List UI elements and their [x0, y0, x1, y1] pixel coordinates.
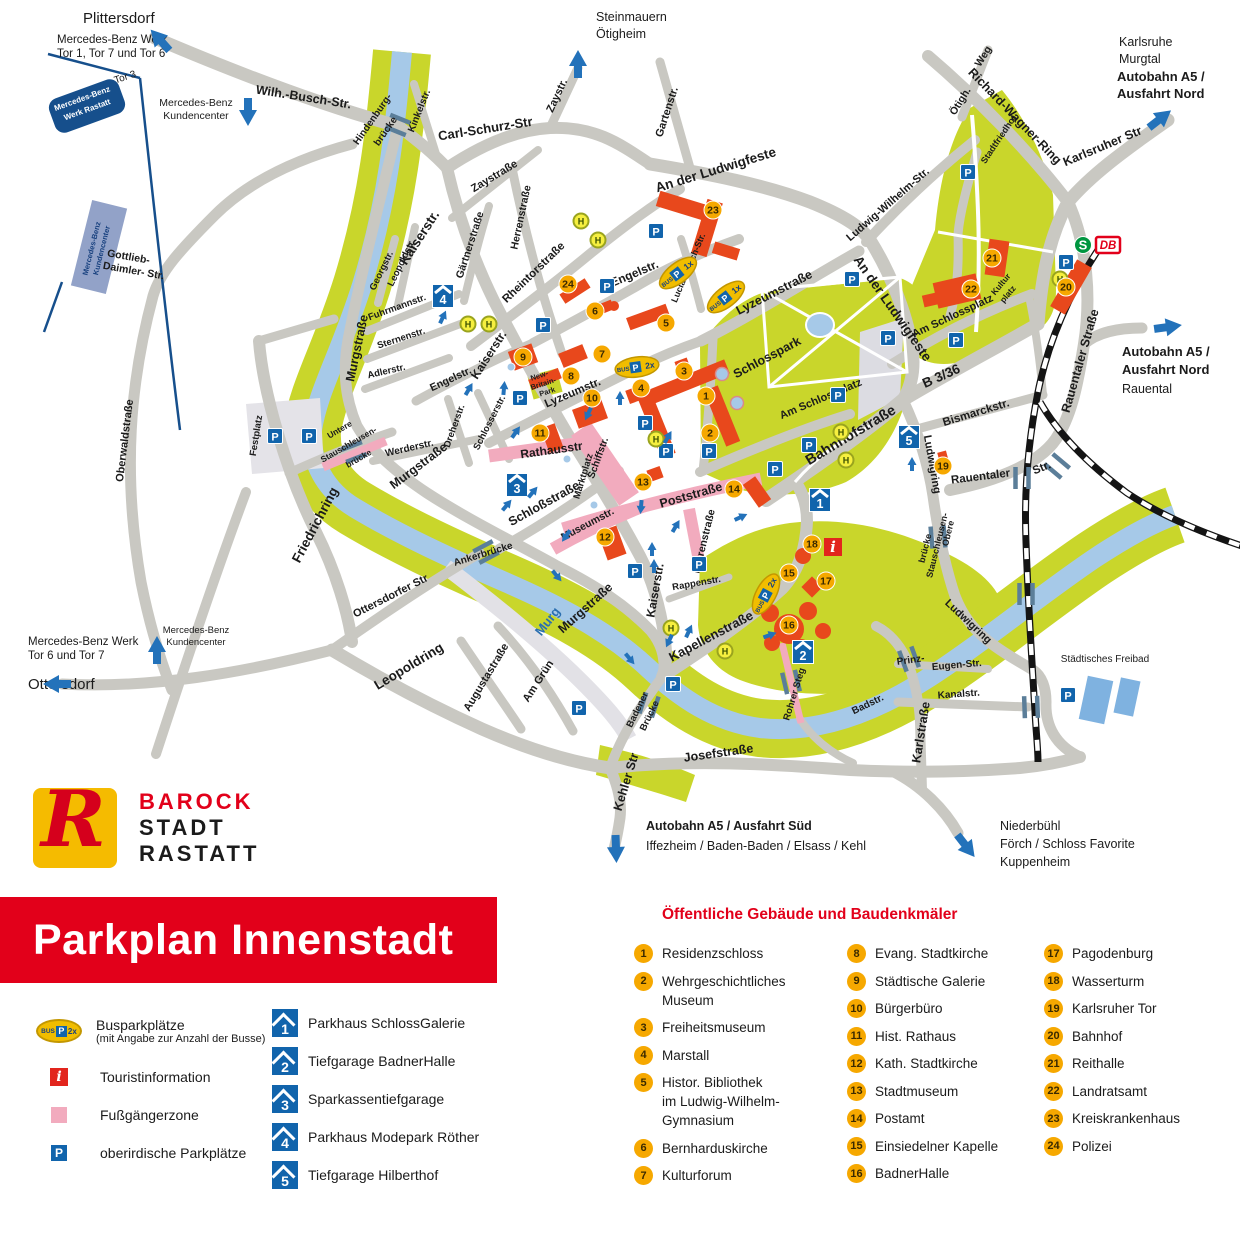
poi-marker-4: 4 — [632, 379, 650, 397]
bus-stop-letter: H — [838, 427, 845, 437]
parking-icon: P — [1059, 255, 1074, 270]
building-number-badge: 21 — [1044, 1054, 1063, 1073]
public-building — [609, 301, 619, 311]
parkplan-rastatt-map: { "banner":{"title":"Parkplan Innenstadt… — [0, 0, 1240, 1240]
poi-marker-22: 22 — [962, 280, 980, 298]
garage-legend-item-2: 2Tiefgarage BadnerHalle — [272, 1047, 455, 1075]
building-label: Wehrgeschichtliches Museum — [662, 972, 786, 1010]
poi-marker-17: 17 — [817, 572, 835, 590]
garage-marker-number: 3 — [514, 482, 521, 496]
map-label: Städtisches Freibad — [1061, 654, 1149, 665]
logo-line-2: STADT — [139, 815, 259, 841]
bus-stop-icon: H — [482, 317, 497, 332]
map-label: Ludwig-Wilhelm-Str. — [844, 166, 932, 244]
garage-marker-number: 1 — [817, 497, 824, 511]
parking-icon-letter: P — [834, 391, 841, 403]
building-legend-item-5: 5Histor. Bibliothek im Ludwig-Wilhelm- G… — [634, 1073, 839, 1130]
building-legend-item-18: 18Wasserturm — [1044, 972, 1219, 991]
oneway-arrow — [733, 510, 749, 524]
poi-marker-3: 3 — [675, 362, 693, 380]
garage-marker-5: 5 — [899, 426, 920, 449]
building-label: Hist. Rathaus — [875, 1027, 956, 1046]
map-label: Förch / Schloss Favorite — [1000, 837, 1135, 851]
legend-zone-label: Fußgängerzone — [100, 1107, 199, 1123]
bus-stop-letter: H — [668, 623, 675, 633]
map-label: B 3/36 — [920, 361, 963, 391]
bus-stop-icon: H — [718, 644, 733, 659]
oneway-arrow — [669, 518, 684, 535]
building-number-badge: 2 — [634, 972, 653, 991]
public-building — [656, 191, 710, 222]
building-legend-item-8: 8Evang. Stadtkirche — [847, 944, 1042, 963]
garage-icon: 4 — [272, 1123, 298, 1151]
map-label: Mercedes-Benz — [163, 625, 230, 636]
parking-icon-letter: P — [952, 336, 959, 348]
bus-stop-icon: H — [664, 621, 679, 636]
building-legend-item-10: 10Bürgerbüro — [847, 999, 1042, 1018]
map-label: Ausfahrt Nord — [1117, 86, 1204, 101]
building-legend-item-2: 2Wehrgeschichtliches Museum — [634, 972, 839, 1010]
poi-number: 21 — [986, 253, 998, 265]
poi-marker-10: 10 — [583, 389, 601, 407]
legend-tourist-info: i Touristinformation — [50, 1068, 211, 1086]
building-number-badge: 17 — [1044, 944, 1063, 963]
oneway-arrow — [648, 542, 657, 556]
parking-icon-letter: P — [695, 560, 702, 572]
map-label: Tor 6 und Tor 7 — [28, 650, 105, 662]
poi-number: 16 — [783, 620, 795, 632]
bus-stop-letter: H — [486, 319, 493, 329]
building-number-badge: 12 — [847, 1054, 866, 1073]
freibad-building — [1113, 677, 1140, 716]
poi-number: 10 — [586, 393, 598, 405]
poi-number: 19 — [937, 461, 949, 473]
parking-icon-letter: P — [652, 227, 659, 239]
bus-parking-icon: BUSP2x — [36, 1019, 82, 1043]
parking-icon: P — [768, 462, 783, 477]
oneway-arrow — [436, 309, 450, 325]
poi-marker-24: 24 — [559, 275, 577, 293]
building-label: Marstall — [662, 1046, 709, 1065]
building-number-badge: 18 — [1044, 972, 1063, 991]
oneway-arrow — [616, 391, 625, 405]
garage-label: Parkhaus SchlossGalerie — [308, 1015, 465, 1031]
fountain — [563, 455, 571, 463]
bus-stop-icon: H — [461, 317, 476, 332]
legend-info-label: Touristinformation — [100, 1069, 211, 1085]
map-label: Kanalstr. — [937, 688, 980, 702]
direction-arrow — [1153, 316, 1183, 338]
parking-icon-letter: P — [669, 680, 676, 692]
building-label: Stadtmuseum — [875, 1082, 958, 1101]
map-label: Rathausstr — [519, 439, 583, 462]
parking-icon-letter: P — [305, 432, 312, 444]
building-number-badge: 5 — [634, 1073, 653, 1092]
building-legend-item-19: 19Karlsruher Tor — [1044, 999, 1219, 1018]
map-label: Mercedes-Benz Werk — [28, 636, 139, 648]
legend-pedestrian-zone: Fußgängerzone — [51, 1107, 199, 1123]
garage-legend-item-3: 3Sparkassentiefgarage — [272, 1085, 444, 1113]
building-legend-item-7: 7Kulturforum — [634, 1166, 839, 1185]
bus-parking-oval-icon: BUSP2x — [614, 354, 660, 380]
poi-number: 18 — [806, 539, 818, 551]
garage-marker-number: 4 — [440, 293, 447, 307]
garage-icon: 1 — [272, 1009, 298, 1037]
map-label: Niederbühl — [1000, 819, 1060, 833]
building-number-badge: 22 — [1044, 1082, 1063, 1101]
parking-icon-letter: P — [603, 282, 610, 294]
bus-stop-letter: H — [578, 216, 585, 226]
building-number-badge: 8 — [847, 944, 866, 963]
poi-marker-5: 5 — [657, 314, 675, 332]
oneway-arrow — [908, 457, 917, 471]
map-label: Murgtal — [1119, 52, 1161, 66]
poi-number: 12 — [599, 532, 611, 544]
building-label: Landratsamt — [1072, 1082, 1147, 1101]
parking-icon-letter: P — [771, 465, 778, 477]
building-number-badge: 4 — [634, 1046, 653, 1065]
garage-label: Parkhaus Modepark Röther — [308, 1129, 479, 1145]
building-legend-item-23: 23Kreiskrankenhaus — [1044, 1109, 1219, 1128]
map-label: Autobahn A5 / — [1117, 69, 1205, 84]
map-label: Poststraße — [658, 480, 724, 511]
poi-marker-6: 6 — [586, 302, 604, 320]
building-legend-item-13: 13Stadtmuseum — [847, 1082, 1042, 1101]
logo-letter: R — [41, 788, 106, 865]
building-legend-item-1: 1Residenzschloss — [634, 944, 839, 963]
building-label: Postamt — [875, 1109, 925, 1128]
buildings-legend-column-3: 17Pagodenburg18Wasserturm19Karlsruher To… — [1044, 944, 1219, 1156]
parking-icon: P — [572, 701, 587, 716]
garage-marker-4: 4 — [433, 285, 454, 308]
bus-stop-letter: H — [595, 235, 602, 245]
bridge-rail — [1053, 454, 1070, 468]
legend-parking-label: oberirdische Parkplätze — [100, 1145, 246, 1161]
building-legend-item-4: 4Marstall — [634, 1046, 839, 1065]
buildings-legend-title: Öffentliche Gebäude und Baudenkmäler — [662, 906, 957, 924]
building-legend-item-15: 15Einsiedelner Kapelle — [847, 1137, 1042, 1156]
tourist-info-icon: i — [50, 1068, 68, 1086]
barock-stadt-rastatt-logo: R BAROCK STADT RASTATT — [33, 788, 259, 868]
parking-icon: P — [692, 557, 707, 572]
building-number-badge: 23 — [1044, 1109, 1063, 1128]
building-label: Städtische Galerie — [875, 972, 985, 991]
garage-label: Tiefgarage Hilberthof — [308, 1167, 438, 1183]
parking-icon: P — [831, 388, 846, 403]
bus-stop-letter: H — [843, 455, 850, 465]
parking-icon: P — [268, 429, 283, 444]
building-label: Kath. Stadtkirche — [875, 1054, 978, 1073]
parking-icon-letter: P — [1062, 258, 1069, 270]
poi-number: 9 — [520, 352, 526, 364]
building-number-badge: 19 — [1044, 999, 1063, 1018]
parking-icon: P — [638, 416, 653, 431]
map-label: Wilh.-Busch-Str. — [255, 83, 352, 112]
building-label: Polizei — [1072, 1137, 1112, 1156]
parking-icon: P — [649, 224, 664, 239]
bridge-rail — [1037, 696, 1038, 718]
parking-icon-letter: P — [805, 441, 812, 453]
building-label: Kreiskrankenhaus — [1072, 1109, 1180, 1128]
garage-marker-1: 1 — [810, 489, 831, 512]
legend-bus-label: Busparkplätze — [96, 1017, 265, 1033]
freibad-building — [1079, 676, 1114, 724]
map-label: Tor 1, Tor 7 und Tor 6 — [57, 48, 165, 60]
poi-number: 17 — [820, 576, 832, 588]
building-label: Evang. Stadtkirche — [875, 944, 988, 963]
fountain — [507, 363, 515, 371]
building-number-badge: 15 — [847, 1137, 866, 1156]
map-label: Leopoldring — [371, 640, 446, 693]
poi-marker-23: 23 — [704, 201, 722, 219]
rastatt-r-logo-icon: R — [33, 788, 117, 868]
poi-number: 24 — [562, 279, 574, 291]
map-label: Autobahn A5 / — [1122, 344, 1210, 359]
map-label: Karlsruhe — [1119, 35, 1173, 49]
logo-line-1: BAROCK — [139, 789, 259, 815]
tourist-info-letter: i — [830, 538, 836, 556]
poi-marker-8: 8 — [562, 367, 580, 385]
building-label: Bürgerbüro — [875, 999, 943, 1018]
poi-number: 22 — [965, 284, 977, 296]
building-label: Bernharduskirche — [662, 1139, 768, 1158]
parking-icon-letter: P — [516, 394, 523, 406]
garage-icon: 3 — [272, 1085, 298, 1113]
building-label: Einsiedelner Kapelle — [875, 1137, 998, 1156]
building-label: Kulturforum — [662, 1166, 732, 1185]
parking-icon: P — [628, 564, 643, 579]
bus-stop-letter: H — [722, 646, 729, 656]
poi-number: 15 — [783, 568, 795, 580]
parking-icon-letter: P — [271, 432, 278, 444]
garage-icon: 5 — [272, 1161, 298, 1189]
map-label: Mercedes-Benz Werk — [57, 34, 168, 46]
poi-marker-1: 1 — [697, 387, 715, 405]
oneway-arrow — [499, 497, 515, 514]
building-legend-item-21: 21Reithalle — [1044, 1054, 1219, 1073]
building-number-badge: 11 — [847, 1027, 866, 1046]
poi-number: 8 — [568, 371, 574, 383]
poi-marker-11: 11 — [531, 424, 549, 442]
building-legend-item-3: 3Freiheitsmuseum — [634, 1018, 839, 1037]
legend-bus-note: (mit Angabe zur Anzahl der Busse) — [96, 1033, 265, 1045]
poi-marker-16: 16 — [780, 616, 798, 634]
map-label: Bismarckstr. — [941, 397, 1011, 429]
page-title: Parkplan Innenstadt — [0, 897, 497, 983]
building-number-badge: 14 — [847, 1109, 866, 1128]
parking-icon: P — [536, 318, 551, 333]
map-label: Kundencenter — [166, 637, 225, 648]
garage-icon: 2 — [272, 1047, 298, 1075]
building-legend-item-20: 20Bahnhof — [1044, 1027, 1219, 1046]
legend-surface-parking: P oberirdische Parkplätze — [51, 1145, 246, 1161]
oneway-arrow — [462, 381, 477, 398]
sbahn-letter: S — [1079, 238, 1088, 253]
poi-number: 1 — [703, 391, 709, 403]
building-number-badge: 16 — [847, 1164, 866, 1183]
parking-icon: P — [302, 429, 317, 444]
poi-marker-19: 19 — [934, 457, 952, 475]
map-label: Rauentaler Straße — [1059, 308, 1102, 415]
poi-number: 14 — [728, 484, 740, 496]
db-letters: DB — [1100, 240, 1117, 252]
pedestrian-zone-icon — [51, 1107, 67, 1123]
building-number-badge: 1 — [634, 944, 653, 963]
poi-number: 7 — [599, 349, 605, 361]
parking-icon-letter: P — [884, 334, 891, 346]
sbahn-logo: S — [1075, 237, 1092, 254]
parking-icon: P — [961, 165, 976, 180]
poi-marker-21: 21 — [983, 249, 1001, 267]
building-label: Histor. Bibliothek im Ludwig-Wilhelm- Gy… — [662, 1073, 780, 1130]
building-legend-item-11: 11Hist. Rathaus — [847, 1027, 1042, 1046]
poi-marker-9: 9 — [514, 348, 532, 366]
garage-label: Sparkassentiefgarage — [308, 1091, 444, 1107]
parking-icon-letter: P — [641, 419, 648, 431]
building-label: BadnerHalle — [875, 1164, 949, 1183]
garage-legend-item-1: 1Parkhaus SchlossGalerie — [272, 1009, 465, 1037]
map-label: Kundencenter — [163, 110, 229, 122]
bus-stop-icon: H — [834, 425, 849, 440]
parking-icon-letter: P — [848, 275, 855, 287]
poi-number: 4 — [638, 383, 644, 395]
parking-icon-letter: P — [705, 447, 712, 459]
parking-icon-letter: P — [631, 567, 638, 579]
public-building — [799, 602, 817, 620]
map-label: Kuppenheim — [1000, 855, 1070, 869]
parking-icon: P — [600, 279, 615, 294]
map-label: Mercedes-Benz — [159, 97, 233, 109]
garage-label: Tiefgarage BadnerHalle — [308, 1053, 455, 1069]
bus-stop-icon: H — [839, 453, 854, 468]
direction-arrow — [239, 98, 257, 126]
parking-icon-letter: P — [575, 704, 582, 716]
map-label: Rauental — [1122, 382, 1172, 396]
building-number-badge: 20 — [1044, 1027, 1063, 1046]
direction-arrow — [607, 835, 626, 864]
buildings-legend-column-2: 8Evang. Stadtkirche9Städtische Galerie10… — [847, 944, 1042, 1183]
building-number-badge: 3 — [634, 1018, 653, 1037]
db-logo: DB — [1096, 237, 1120, 253]
logo-text: BAROCK STADT RASTATT — [139, 789, 259, 867]
building-label: Karlsruher Tor — [1072, 999, 1157, 1018]
map-label: Plittersdorf — [83, 10, 156, 27]
bus-stop-letter: H — [465, 319, 472, 329]
buildings-legend-column-1: 1Residenzschloss2Wehrgeschichtliches Mus… — [634, 944, 839, 1185]
poi-number: 5 — [663, 318, 669, 330]
fountain — [731, 397, 744, 410]
building-legend-item-12: 12Kath. Stadtkirche — [847, 1054, 1042, 1073]
poi-marker-7: 7 — [593, 345, 611, 363]
garage-marker-2: 2 — [793, 641, 814, 664]
parking-icon-letter: P — [662, 447, 669, 459]
fountain — [590, 501, 598, 509]
poi-number: 3 — [681, 366, 687, 378]
building-number-badge: 13 — [847, 1082, 866, 1101]
bridge-rail — [1024, 696, 1025, 718]
oneway-arrow — [499, 381, 509, 396]
building-legend-item-9: 9Städtische Galerie — [847, 972, 1042, 991]
building-number-badge: 9 — [847, 972, 866, 991]
parking-icon: P — [845, 272, 860, 287]
bus-stop-icon: H — [591, 233, 606, 248]
fountain — [716, 368, 729, 381]
tourist-info-marker: i — [824, 538, 842, 556]
bus-stop-icon: H — [649, 432, 664, 447]
building-number-badge: 7 — [634, 1166, 653, 1185]
map-label: Ausfahrt Nord — [1122, 362, 1209, 377]
garage-legend-item-5: 5Tiefgarage Hilberthof — [272, 1161, 438, 1189]
poi-marker-20: 20 — [1057, 278, 1075, 296]
garage-legend-item-4: 4Parkhaus Modepark Röther — [272, 1123, 479, 1151]
poi-marker-12: 12 — [596, 528, 614, 546]
building-label: Wasserturm — [1072, 972, 1144, 991]
parking-icon-letter: P — [1064, 691, 1071, 703]
building-label: Bahnhof — [1072, 1027, 1122, 1046]
bus-oval-count: 2x — [644, 360, 655, 371]
building-legend-item-24: 24Polizei — [1044, 1137, 1219, 1156]
parking-icon: P — [666, 677, 681, 692]
public-building — [815, 623, 831, 639]
bus-stop-icon: H — [574, 214, 589, 229]
poi-marker-2: 2 — [701, 424, 719, 442]
parking-icon: P — [513, 391, 528, 406]
building-legend-item-17: 17Pagodenburg — [1044, 944, 1219, 963]
building-label: Freiheitsmuseum — [662, 1018, 766, 1037]
building-number-badge: 24 — [1044, 1137, 1063, 1156]
parking-icon: P — [949, 333, 964, 348]
map-label: Steinmauern — [596, 10, 667, 24]
map-label: Ötigheim — [596, 27, 646, 41]
garage-marker-3: 3 — [507, 474, 528, 497]
poi-number: 23 — [707, 205, 719, 217]
poi-number: 2 — [707, 428, 713, 440]
building-label: Reithalle — [1072, 1054, 1125, 1073]
bus-stop-letter: H — [653, 434, 660, 444]
legend-bus-parking: BUSP2x Busparkplätze (mit Angabe zur Anz… — [36, 1017, 265, 1045]
poi-marker-15: 15 — [780, 564, 798, 582]
building-number-badge: 10 — [847, 999, 866, 1018]
building-label: Pagodenburg — [1072, 944, 1153, 963]
building-legend-item-16: 16BadnerHalle — [847, 1164, 1042, 1183]
parking-icon: P — [881, 331, 896, 346]
garage-marker-number: 5 — [906, 434, 913, 448]
poi-marker-18: 18 — [803, 535, 821, 553]
building-legend-item-14: 14Postamt — [847, 1109, 1042, 1128]
parking-icon: P — [802, 438, 817, 453]
garage-marker-number: 2 — [800, 649, 807, 663]
poi-marker-14: 14 — [725, 480, 743, 498]
building-label: Residenzschloss — [662, 944, 763, 963]
building-number-badge: 6 — [634, 1139, 653, 1158]
building-legend-item-22: 22Landratsamt — [1044, 1082, 1219, 1101]
city-map: PlittersdorfMercedes-Benz WerkTor 1, Tor… — [0, 0, 1240, 895]
poi-marker-13: 13 — [634, 473, 652, 491]
poi-number: 20 — [1060, 282, 1072, 294]
parking-icon: P — [1061, 688, 1076, 703]
parking-icon-letter: P — [964, 168, 971, 180]
surface-parking-icon: P — [51, 1145, 67, 1161]
poi-number: 6 — [592, 306, 598, 318]
schlosspark-pond — [806, 313, 834, 337]
map-label: Iffezheim / Baden-Baden / Elsass / Kehl — [646, 839, 866, 853]
mercedes-area — [44, 54, 180, 430]
logo-line-3: RASTATT — [139, 841, 259, 867]
poi-number: 13 — [637, 477, 649, 489]
building-legend-item-6: 6Bernharduskirche — [634, 1139, 839, 1158]
poi-number: 11 — [534, 428, 545, 440]
parking-icon: P — [702, 444, 717, 459]
